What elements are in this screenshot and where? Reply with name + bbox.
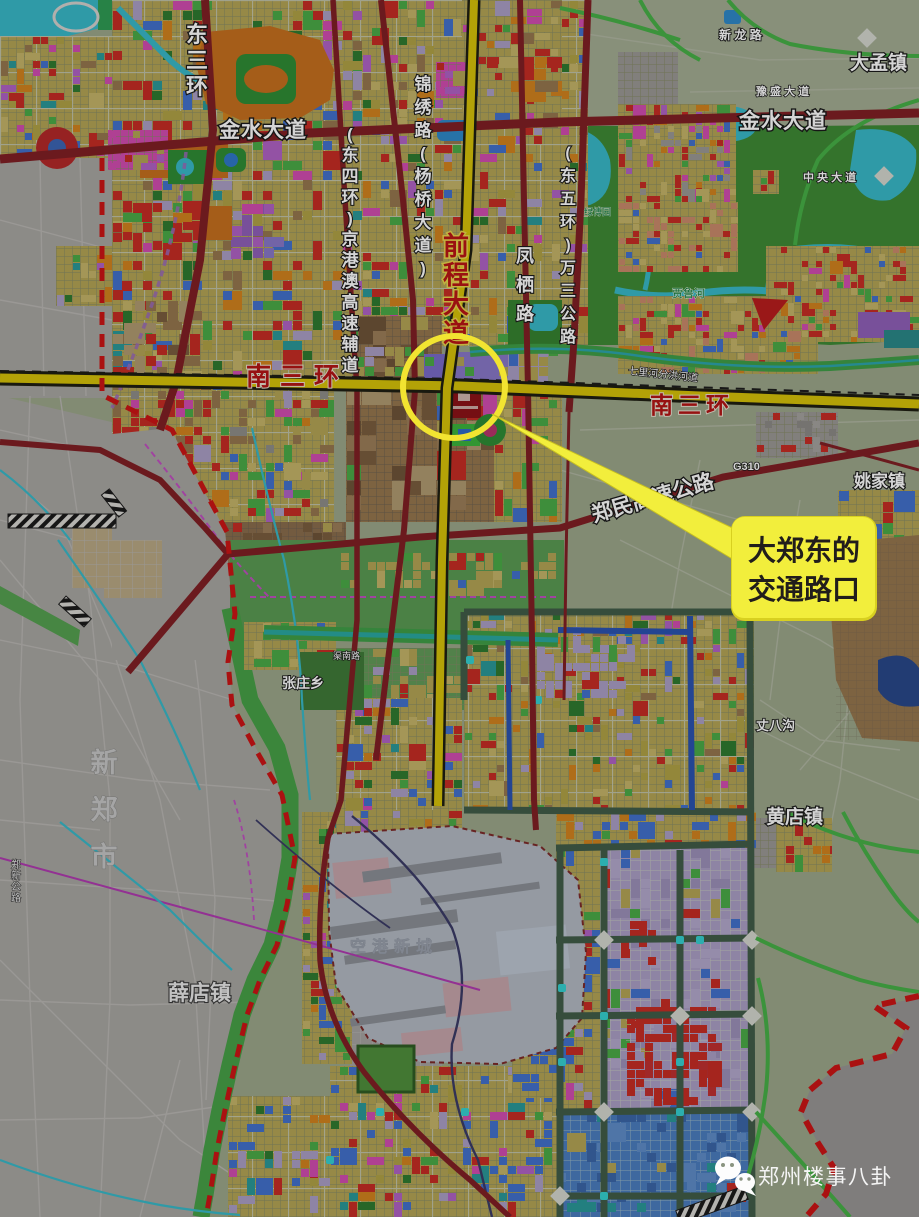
svg-text:大郑东的: 大郑东的 [748,534,860,566]
svg-text:交通路口: 交通路口 [748,573,860,605]
svg-text:郑州楼事八卦: 郑州楼事八卦 [758,1166,893,1189]
